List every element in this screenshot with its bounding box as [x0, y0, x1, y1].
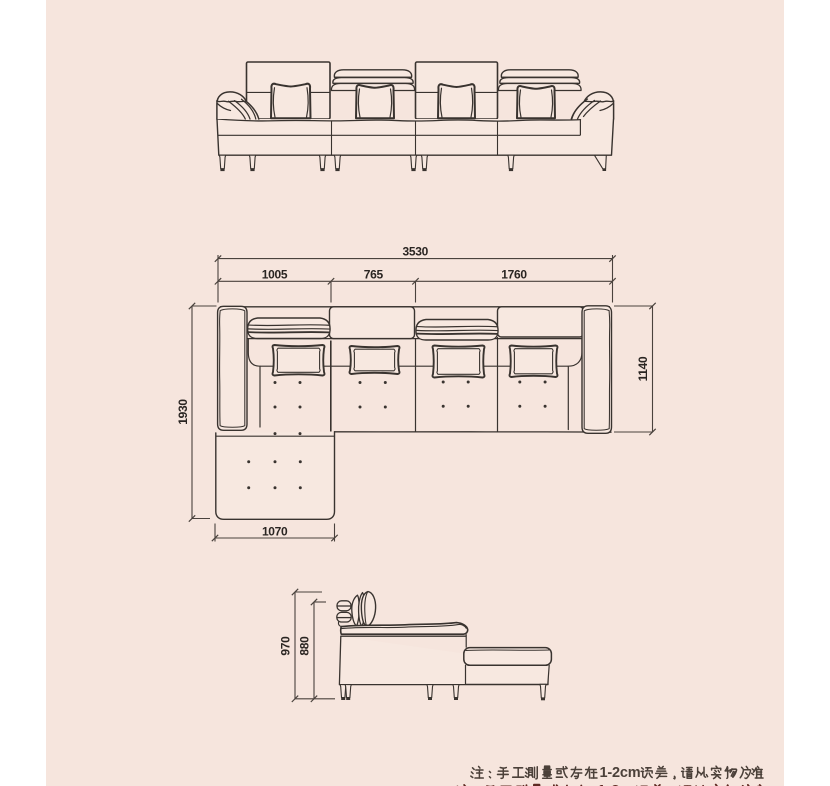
svg-text:1-2cm: 1-2cm — [600, 765, 641, 781]
svg-text:880: 880 — [298, 636, 312, 656]
svg-text:1760: 1760 — [501, 268, 527, 282]
svg-text:1930: 1930 — [176, 399, 190, 425]
svg-text:1140: 1140 — [636, 356, 650, 381]
svg-text:1070: 1070 — [262, 524, 288, 538]
svg-text:1005: 1005 — [262, 268, 288, 282]
svg-text:970: 970 — [279, 636, 293, 656]
svg-text:765: 765 — [364, 268, 384, 282]
svg-text:3530: 3530 — [403, 245, 429, 259]
